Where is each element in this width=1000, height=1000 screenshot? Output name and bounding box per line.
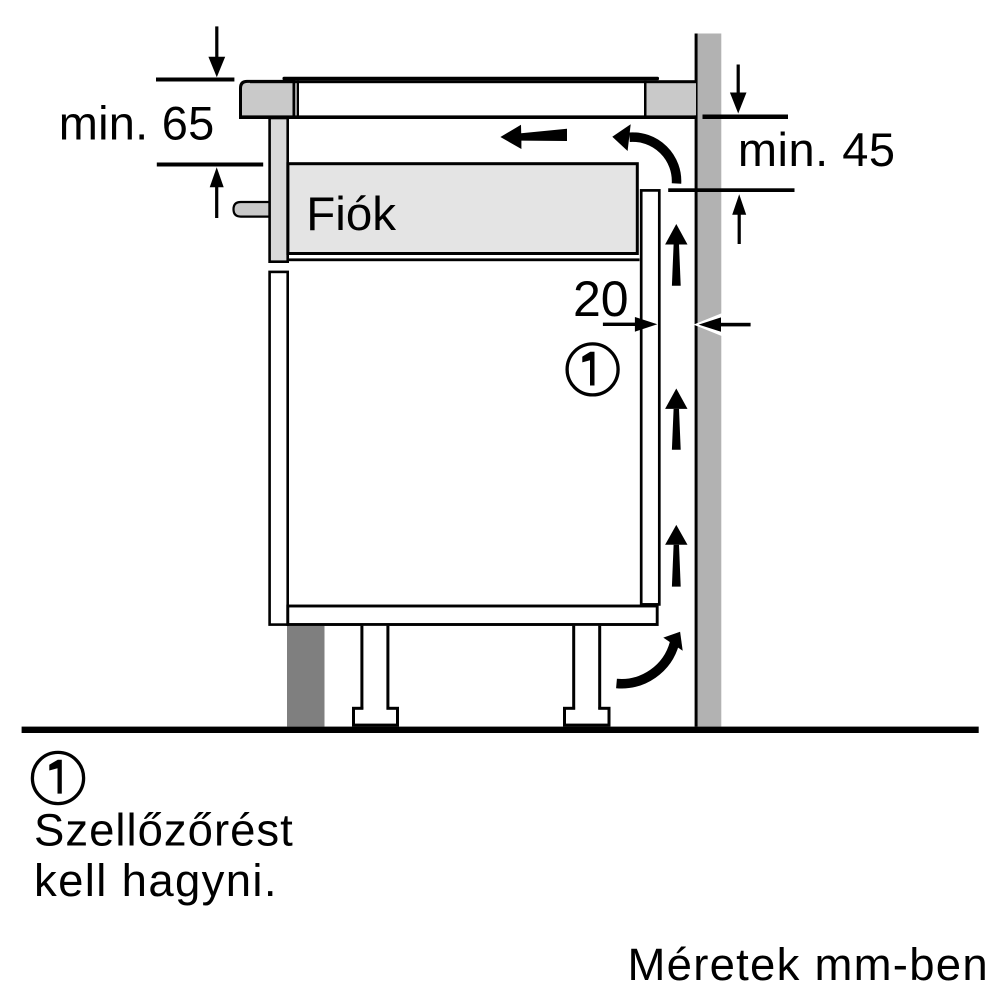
- svg-text:min. 65: min. 65: [59, 97, 215, 150]
- svg-text:kell hagyni.: kell hagyni.: [34, 855, 278, 906]
- svg-text:Méretek mm-ben: Méretek mm-ben: [628, 939, 989, 990]
- svg-text:Szellőzőrést: Szellőzőrést: [34, 805, 294, 856]
- svg-text:Fiók: Fiók: [306, 188, 396, 241]
- svg-text:min. 45: min. 45: [738, 123, 896, 176]
- svg-text:20: 20: [573, 271, 629, 327]
